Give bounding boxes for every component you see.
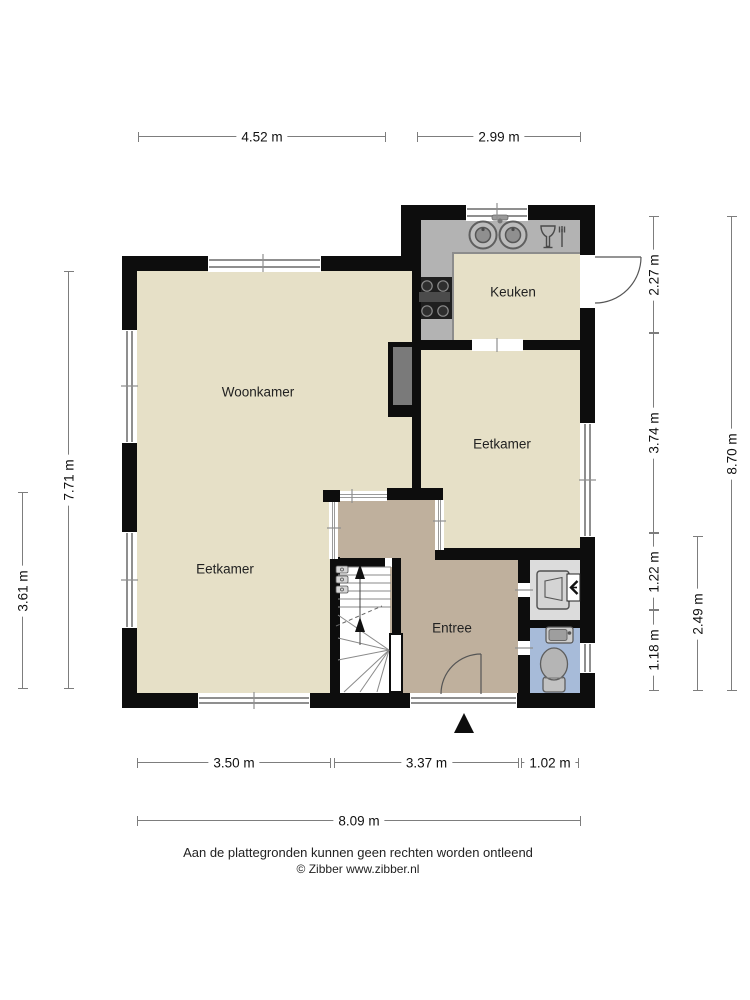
toilet-room-floor [525, 622, 583, 695]
room-label-woonkamer: Woonkamer [222, 385, 295, 400]
wall-entree-corner-stub [323, 490, 340, 502]
footer-disclaimer: Aan de plattegronden kunnen geen rechten… [58, 845, 658, 860]
dim-bottom-seg3: 1.02 m [522, 762, 578, 763]
room-label-keuken: Keuken [490, 285, 536, 300]
dim-right-lower-sub: 2.49 m [697, 537, 698, 690]
dim-right-seg3: 1.22 m [653, 533, 654, 610]
toilet-door-opening [518, 641, 530, 655]
staircase-floor [337, 560, 390, 693]
entrance-triangle-icon [454, 713, 474, 733]
glass-partition-entree-right [435, 500, 444, 550]
dim-bottom-seg2: 3.37 m [335, 762, 518, 763]
front-door-threshold [410, 693, 517, 708]
wall-bottom-exterior [122, 693, 595, 708]
window-top-left [208, 255, 321, 272]
utility-room-floor [525, 555, 583, 625]
room-label-eetkamer-left: Eetkamer [196, 562, 254, 577]
room-label-entree: Entree [432, 621, 472, 636]
utility-door-opening [518, 583, 530, 597]
window-kitchen-top [466, 204, 528, 221]
floor-plan-canvas: Woonkamer Keuken Eetkamer Eetkamer Entre… [0, 0, 750, 1000]
footer-copyright: © Zibber www.zibber.nl [58, 862, 658, 876]
understair-closet [389, 633, 403, 693]
glass-partition-entree-top [340, 491, 387, 501]
wall-entree-dining [435, 548, 580, 560]
window-dining-right [580, 423, 595, 537]
wall-stair-left [330, 557, 340, 693]
room-label-eetkamer-right: Eetkamer [473, 437, 531, 452]
window-toilet-right [580, 643, 595, 673]
wall-stair-right [392, 558, 401, 635]
dim-top-right-section: 2.99 m [418, 136, 580, 137]
glass-partition-entree-left [329, 502, 338, 559]
dining-right-lower-floor [440, 500, 580, 550]
dim-left-lower: 3.61 m [22, 493, 23, 688]
dim-right-seg4: 1.18 m [653, 610, 654, 690]
dim-top-left-section: 4.52 m [139, 136, 385, 137]
wall-left-exterior [122, 256, 137, 708]
dim-bottom-total: 8.09 m [138, 820, 580, 821]
kitchen-door-swing [595, 257, 641, 303]
wall-mid-vertical [412, 218, 421, 497]
entree-upper-floor [335, 495, 443, 557]
wall-stair-top [337, 558, 385, 567]
stove [417, 277, 452, 319]
window-left-upper [122, 330, 137, 443]
wall-utility-toilet-divider [527, 620, 580, 628]
footer: Aan de plattegronden kunnen geen rechten… [58, 845, 658, 876]
stair-top-gap [385, 558, 392, 567]
kitchen-exterior-door-opening [580, 255, 595, 308]
dim-bottom-seg1: 3.50 m [138, 762, 330, 763]
dim-left-total: 7.71 m [68, 272, 69, 688]
dim-right-seg1: 2.27 m [653, 217, 654, 333]
window-bottom [198, 693, 310, 708]
dim-right-seg2: 3.74 m [653, 333, 654, 533]
dim-right-total: 8.70 m [731, 217, 732, 690]
window-left-lower [122, 532, 137, 628]
kitchen-counter-top [416, 218, 580, 254]
kitchen-dining-passage [472, 339, 523, 351]
wall-entree-top [387, 488, 443, 500]
